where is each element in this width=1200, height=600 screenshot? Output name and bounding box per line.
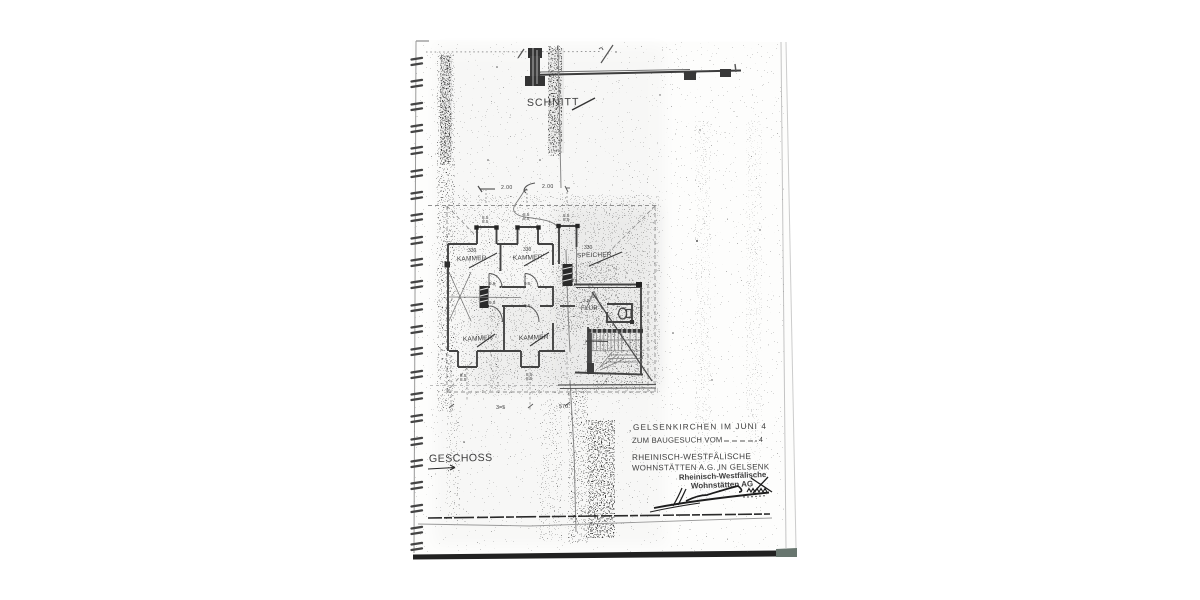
svg-text:8.5: 8.5 (523, 216, 530, 221)
svg-text:8.5: 8.5 (571, 278, 578, 283)
svg-text:3=5: 3=5 (496, 405, 505, 411)
svg-text:2.00: 2.00 (542, 184, 554, 190)
svg-text:ZUM BAUGESUCH VOM: ZUM BAUGESUCH VOM (632, 435, 723, 445)
svg-text:2.2: 2.2 (583, 298, 590, 303)
svg-text:9.5: 9.5 (489, 300, 496, 305)
svg-text:GELSENKIRCHEN IM JUNI 4: GELSENKIRCHEN IM JUNI 4 (633, 422, 767, 432)
svg-text:8.5: 8.5 (526, 376, 533, 381)
svg-text:GESCHOSS: GESCHOSS (429, 452, 493, 465)
svg-text:9.5: 9.5 (524, 303, 531, 308)
svg-text:8.5: 8.5 (482, 219, 489, 224)
svg-text:330: 330 (468, 248, 477, 254)
svg-text:570: 570 (559, 404, 568, 410)
svg-text:2.00: 2.00 (501, 185, 513, 191)
svg-text:330: 330 (584, 245, 593, 251)
svg-text:SCHNITT: SCHNITT (527, 96, 580, 109)
svg-text:,: , (629, 424, 631, 433)
svg-text:4: 4 (759, 437, 763, 444)
svg-text:9.5: 9.5 (489, 281, 496, 286)
svg-text:9.5: 9.5 (524, 281, 531, 286)
svg-text:330: 330 (523, 247, 532, 253)
svg-text:KAMMER: KAMMER (519, 334, 549, 342)
svg-text:RHEINISCH-WESTFÄLISCHE: RHEINISCH-WESTFÄLISCHE (632, 451, 751, 462)
svg-text:FLUR: FLUR (581, 305, 598, 312)
svg-text:KAMMER: KAMMER (457, 255, 487, 263)
svg-text:8.5: 8.5 (563, 217, 570, 222)
svg-text:8.5: 8.5 (460, 377, 467, 382)
